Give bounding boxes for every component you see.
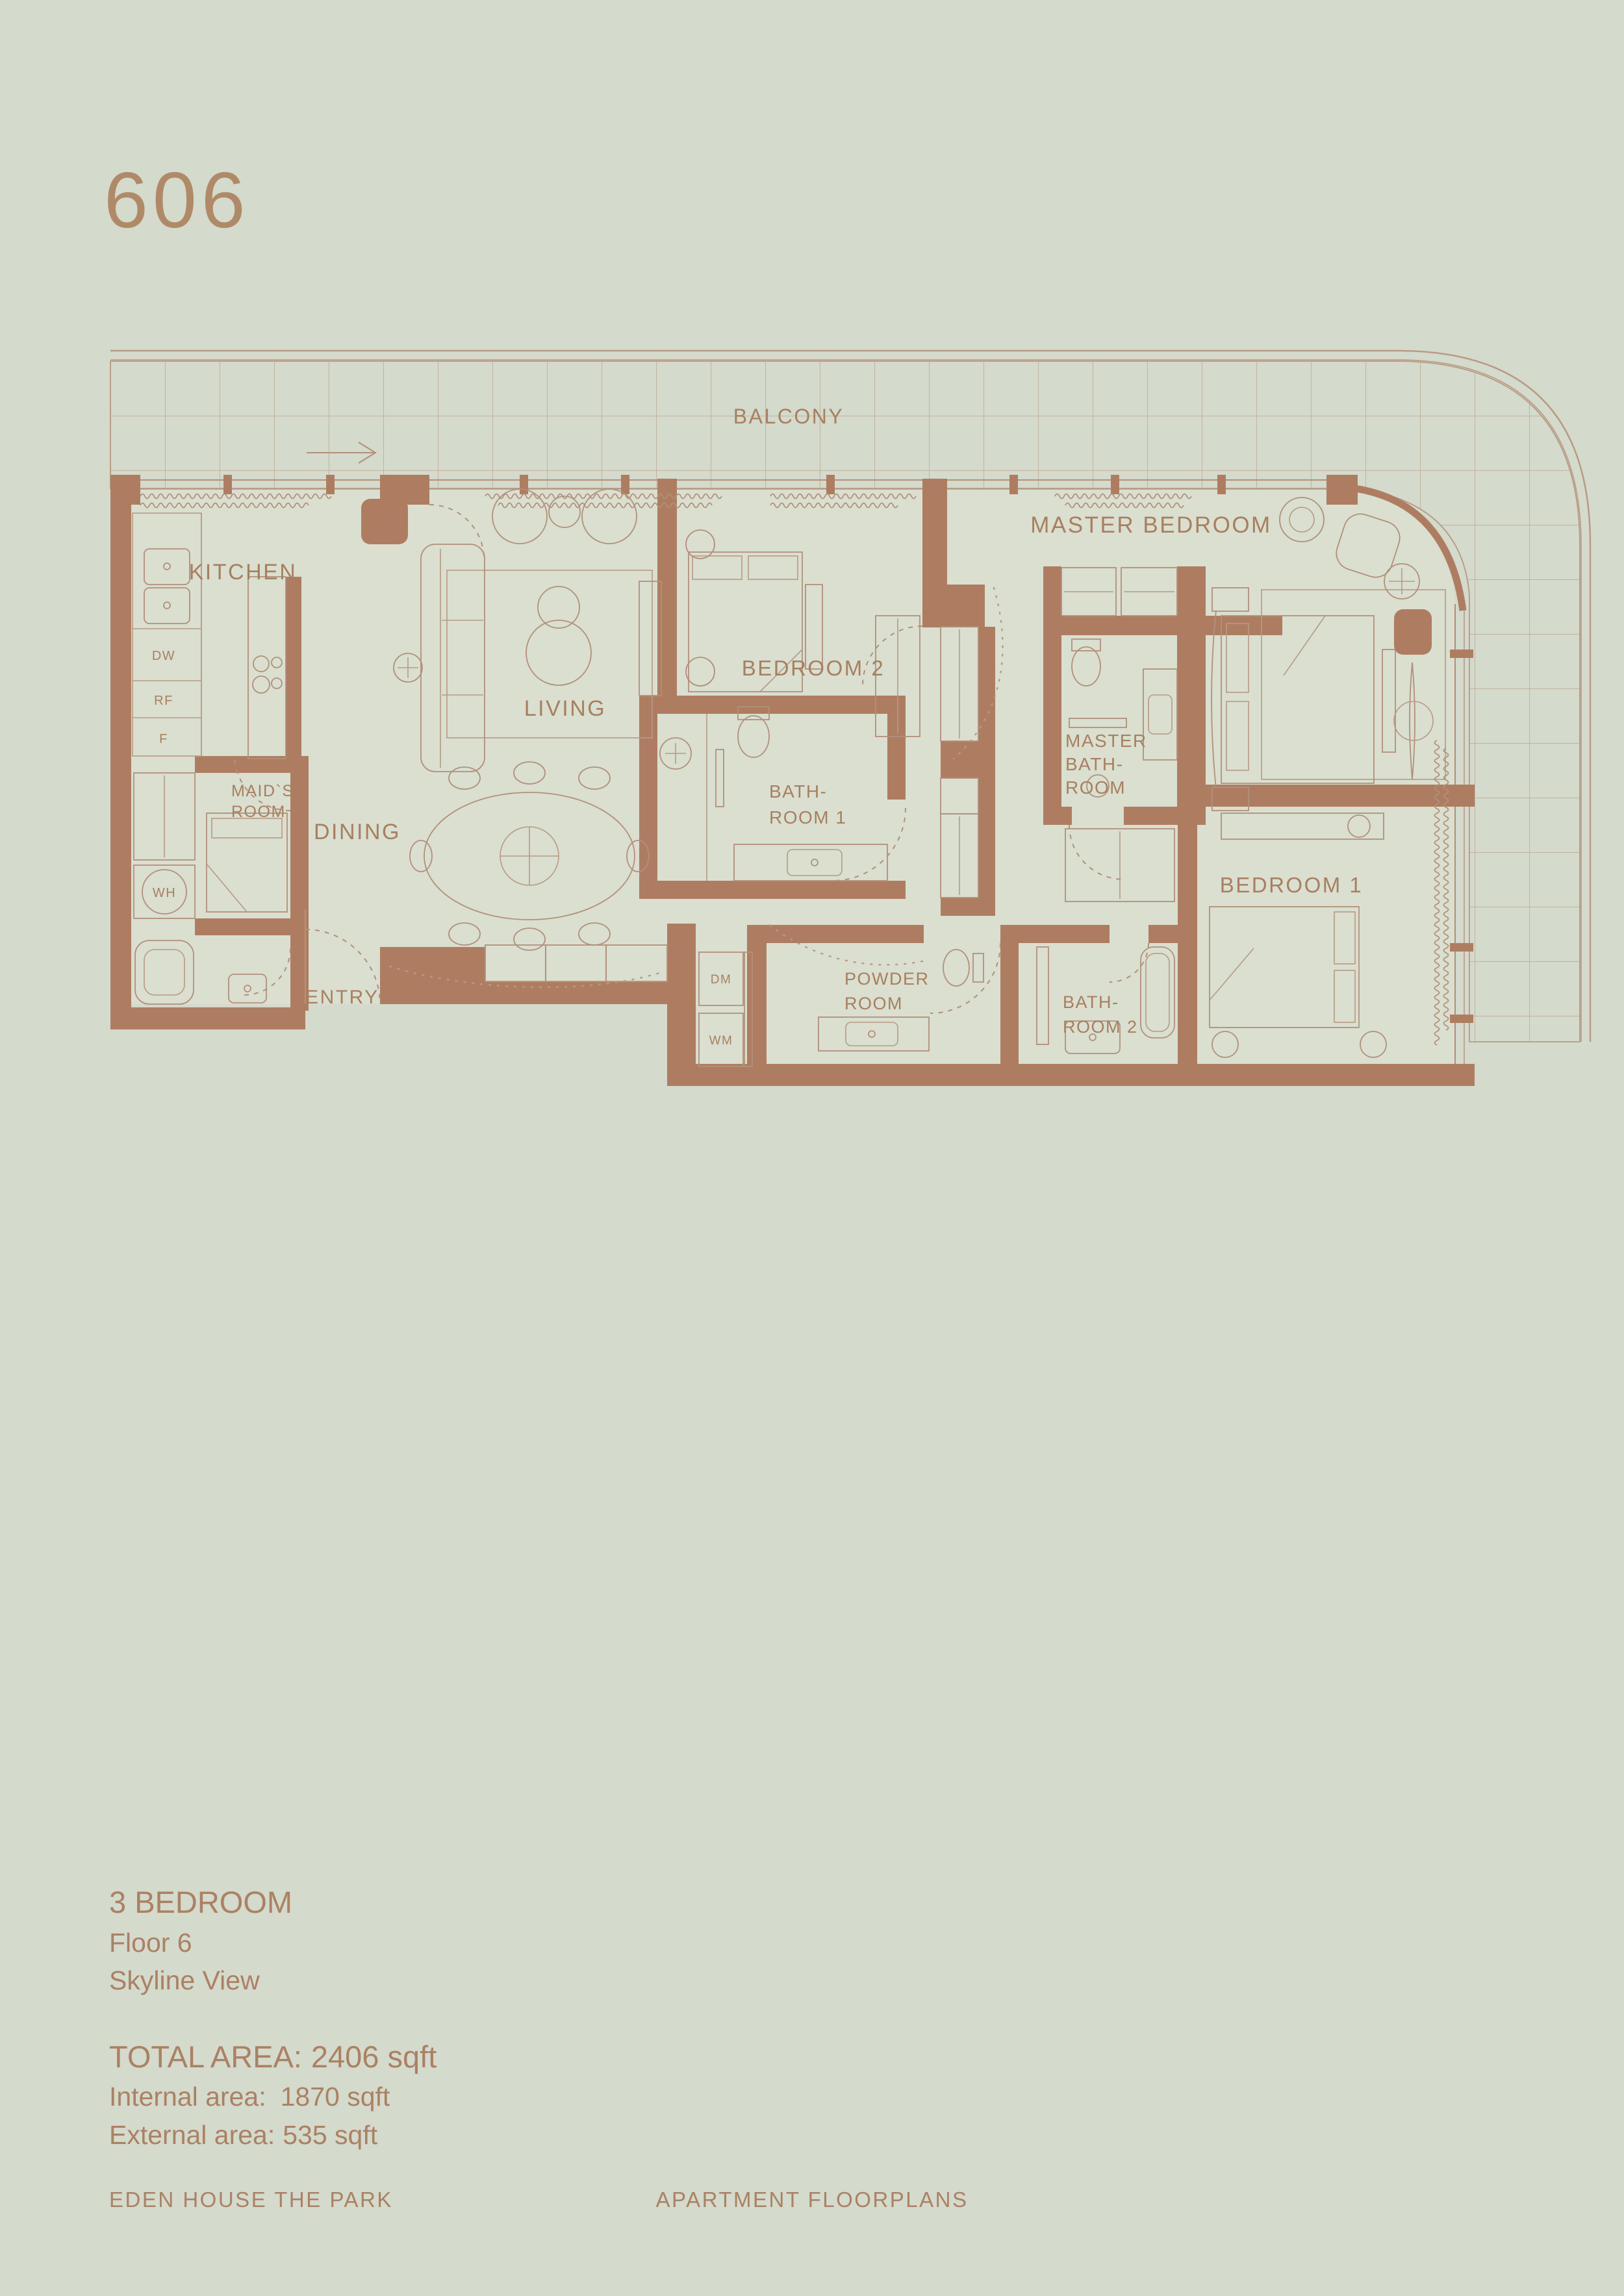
total-area-label: TOTAL AREA: [109, 2039, 302, 2074]
media-unit [361, 499, 408, 544]
project-name: EDEN HOUSE THE PARK [109, 2188, 393, 2212]
floorplan-svg: 606 BALCONY [0, 0, 1624, 2296]
entry-label: ENTRY [305, 987, 379, 1008]
dryer-label: DM [711, 973, 732, 987]
balcony-label: BALCONY [733, 405, 844, 428]
master-bath-label-1: MASTER [1065, 731, 1147, 751]
internal-area-text: Internal area:1870 sqft [109, 2082, 390, 2112]
bedrooms-text: 3 BEDROOM [109, 1885, 292, 1919]
internal-area-value: 1870 sqft [281, 2082, 390, 2112]
master-bedroom-label: MASTER BEDROOM [1030, 512, 1271, 538]
maids-room-label-2: ROOM [231, 803, 286, 821]
bathroom2-label-2: ROOM 2 [1063, 1017, 1138, 1037]
master-bath-label-2: BATH- [1065, 754, 1123, 774]
powder-room-label-2: ROOM [844, 994, 903, 1013]
total-area-text: TOTAL AREA:2406 sqft [109, 2039, 437, 2074]
external-area-text: External area:535 sqft [109, 2120, 378, 2150]
master-bath-label-3: ROOM [1065, 777, 1126, 798]
bathroom1-label-2: ROOM 1 [769, 807, 846, 827]
dishwasher-label: DW [152, 649, 175, 663]
kitchen-label: KITCHEN [189, 560, 298, 585]
powder-room-label-1: POWDER [844, 969, 930, 989]
bedroom2-label: BEDROOM 2 [742, 656, 885, 680]
living-label: LIVING [524, 696, 606, 721]
apartment-floor [131, 488, 1455, 1064]
view-text: Skyline View [109, 1965, 260, 1995]
bathroom2-label-1: BATH- [1063, 992, 1119, 1012]
floor-text: Floor 6 [109, 1928, 192, 1958]
external-area-value: 535 sqft [283, 2120, 377, 2150]
refrigerator-label: RF [154, 694, 173, 708]
bathroom1-label-1: BATH- [769, 781, 827, 801]
freezer-label: F [159, 732, 168, 746]
total-area-value: 2406 sqft [311, 2039, 437, 2074]
dining-label: DINING [314, 820, 401, 844]
external-area-label: External area: [109, 2120, 275, 2150]
internal-area-label: Internal area: [109, 2082, 266, 2112]
bedroom1-label: BEDROOM 1 [1220, 873, 1364, 897]
page-footer: EDEN HOUSE THE PARK APARTMENT FLOORPLANS [109, 2188, 968, 2212]
washer-label: WM [709, 1034, 733, 1048]
maids-room-label-1: MAID`S [231, 782, 294, 800]
unit-number: 606 [104, 156, 250, 244]
pouf [1394, 609, 1432, 655]
unit-details: 3 BEDROOM Floor 6 Skyline View TOTAL ARE… [109, 1885, 437, 2150]
document-name: APARTMENT FLOORPLANS [656, 2188, 969, 2212]
floorplan-page: 606 BALCONY [0, 0, 1624, 2296]
water-heater-label: WH [153, 886, 176, 900]
